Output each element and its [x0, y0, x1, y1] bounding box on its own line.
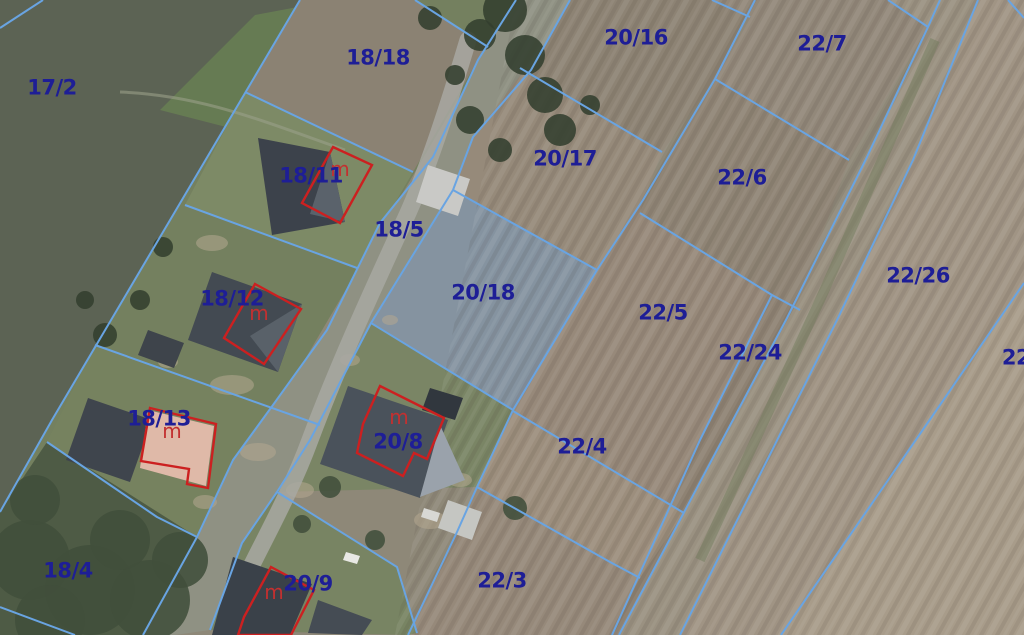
tree-canopy — [153, 237, 173, 257]
dirt-patch — [382, 315, 398, 325]
tree-canopy — [445, 65, 465, 85]
tree-canopy — [130, 290, 150, 310]
parcel-label-18-13: 18/13 — [127, 406, 191, 430]
parcel-label-20-9: 20/9 — [283, 571, 333, 595]
parcel-label-20-17: 20/17 — [533, 146, 597, 170]
parcel-label-18-11: 18/11 — [279, 163, 343, 187]
parcel-label-22-7: 22/7 — [797, 31, 847, 55]
dirt-patch — [240, 443, 276, 461]
tree-canopy — [152, 532, 208, 588]
parcel-label-18-4: 18/4 — [43, 558, 93, 582]
tree-canopy — [76, 291, 94, 309]
parcel-label-22-3: 22/3 — [477, 568, 527, 592]
building-mark-m: m — [264, 580, 283, 604]
parcel-label-22-4: 22/4 — [557, 434, 607, 458]
dirt-patch — [210, 375, 254, 395]
parcel-label-22-5: 22/5 — [638, 300, 688, 324]
building-mark-m: m — [389, 405, 408, 429]
parcel-label-22: 22 — [1002, 345, 1024, 369]
parcel-label-18-12: 18/12 — [200, 286, 264, 310]
dirt-patch — [196, 235, 228, 251]
parcel-label-22-26: 22/26 — [886, 263, 950, 287]
parcel-label-18-5: 18/5 — [374, 217, 424, 241]
parcel-label-17-2: 17/2 — [27, 75, 77, 99]
parcel-label-18-18: 18/18 — [346, 45, 410, 69]
tree-canopy — [365, 530, 385, 550]
parcel-label-20-18: 20/18 — [451, 280, 515, 304]
cadastral-map-canvas: mmmmm17/218/1820/1622/718/1120/1722/618/… — [0, 0, 1024, 635]
parcel-label-22-24: 22/24 — [718, 340, 782, 364]
tree-canopy — [90, 510, 150, 570]
parcel-label-22-6: 22/6 — [717, 165, 767, 189]
cadastral-map-viewport[interactable]: mmmmm17/218/1820/1622/718/1120/1722/618/… — [0, 0, 1024, 635]
tree-canopy — [293, 515, 311, 533]
tree-canopy — [319, 476, 341, 498]
tree-canopy — [488, 138, 512, 162]
parcel-label-20-16: 20/16 — [604, 25, 668, 49]
tree-canopy — [544, 114, 576, 146]
parcel-label-20-8: 20/8 — [373, 429, 423, 453]
